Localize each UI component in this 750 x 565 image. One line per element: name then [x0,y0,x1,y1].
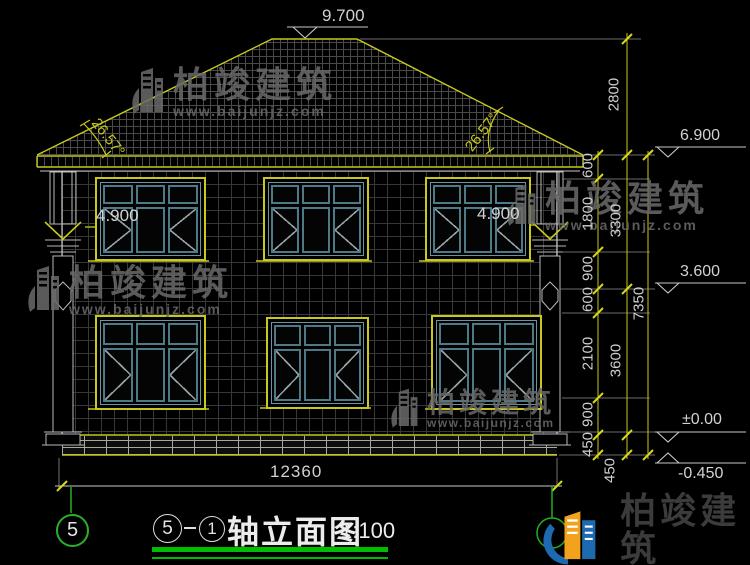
casement-pane [168,207,198,253]
window-pane [168,185,198,204]
window-pane [136,323,166,345]
dim-plinth: 450 [602,436,619,506]
level-ridge: 9.700 [322,6,365,26]
company-logo-icon [538,504,612,565]
window-pane [433,185,461,204]
title-axis-to-bubble: 1 [199,516,225,542]
watermark-right: 柏竣建筑www.baijunjz.com [502,180,709,232]
left-pilaster-cap [45,222,81,239]
watermark-mid-left: 柏竣建筑www.baijunjz.com [22,264,233,316]
window-pane [304,349,331,401]
level-ground: ±0.00 [682,411,722,429]
company-logo: 柏竣建筑www.baijunjz.com [538,492,750,565]
logo-brand: 柏竣建筑 [620,492,750,565]
title-axis-from-bubble: 5 [153,514,182,543]
window-pane [334,325,361,346]
watermark-mid-bottom: 柏竣建筑www.baijunjz.com [386,386,555,432]
brand-building-icon [22,264,62,316]
watermark-url: www.baijunjz.com [173,104,337,119]
window-lower-center [266,317,369,409]
casement-pane [103,348,133,402]
dim-roof-height: 2800 [606,60,623,130]
window-pane [168,323,198,345]
dim-inner-5: 2100 [580,319,597,389]
dim-overall-height: 7350 [631,269,648,339]
window-pane [464,185,492,204]
level-eave: 6.900 [680,127,720,145]
level-floor2: 3.600 [680,263,720,281]
window-pane [271,185,299,204]
level-window-left: 4.900 [96,206,139,226]
brand-building-icon [126,66,166,118]
window-pane [472,323,502,345]
casement-pane [271,207,299,253]
watermark-url: www.baijunjz.com [545,218,709,233]
elevation-drawing-canvas: 柏竣建筑www.baijunjz.com 柏竣建筑www.baijunjz.co… [0,0,750,565]
window-pane [439,323,469,345]
casement-pane [333,207,361,253]
window-upper-center [263,177,369,261]
brand-building-icon [386,386,420,432]
dim-total-width: 12360 [270,462,322,482]
window-pane [103,185,133,204]
window-pane [136,185,166,204]
casement-pane [168,348,198,402]
watermark-brand: 柏竣建筑 [173,66,337,104]
window-pane [504,323,534,345]
casement-pane [433,207,461,253]
level-window-right: 4.900 [477,204,520,224]
window-pane [304,325,331,346]
dim-inner-7: 450 [580,410,597,480]
drawing-scale: 1:100 [340,518,395,544]
watermark-brand: 柏竣建筑 [69,264,233,302]
window-pane [274,325,301,346]
window-pane [302,207,330,253]
window-pane [103,323,133,345]
watermark-brand: 柏竣建筑 [427,388,555,417]
casement-pane [274,349,301,401]
dim-storey-1: 3600 [608,326,625,396]
casement-pane [334,349,361,401]
window-pane [136,207,166,253]
watermark-top: 柏竣建筑www.baijunjz.com [126,66,337,118]
window-pane [333,185,361,204]
watermark-url: www.baijunjz.com [427,417,555,430]
watermark-brand: 柏竣建筑 [545,180,709,218]
dim-storey-2: 3300 [608,186,625,256]
watermark-url: www.baijunjz.com [69,302,233,317]
window-pane [136,348,166,402]
level-base: -0.450 [678,465,723,483]
axis-bubble-left: 5 [56,514,89,547]
window-lower-left [95,315,206,410]
window-pane [302,185,330,204]
plinth-lines [62,435,557,455]
title-dash [184,527,196,529]
